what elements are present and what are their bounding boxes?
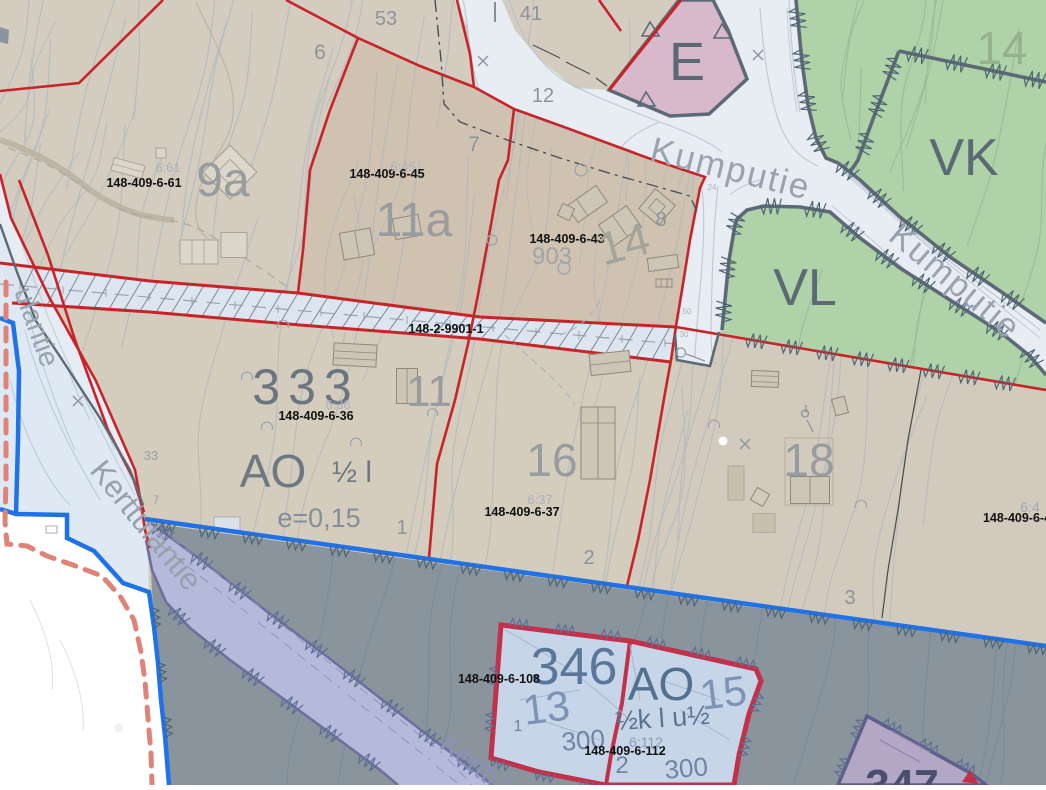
svg-text:18: 18 [783, 434, 834, 486]
svg-text:24: 24 [708, 183, 717, 192]
svg-text:6:61: 6:61 [155, 160, 180, 175]
svg-text:2: 2 [583, 547, 594, 569]
svg-text:6:37: 6:37 [527, 492, 552, 507]
svg-text:30: 30 [680, 330, 689, 339]
svg-text:148-409-6-108: 148-409-6-108 [458, 672, 540, 686]
svg-text:53: 53 [375, 8, 397, 30]
svg-text:11: 11 [406, 367, 452, 416]
svg-text:903: 903 [532, 243, 572, 270]
svg-text:1: 1 [514, 718, 523, 735]
svg-text:6:112: 6:112 [629, 734, 663, 750]
svg-text:16: 16 [526, 434, 577, 486]
svg-text:33: 33 [144, 448, 158, 463]
svg-text:148-409-6-61: 148-409-6-61 [106, 176, 181, 190]
svg-text:6:36: 6:36 [325, 397, 350, 412]
svg-text:½ l: ½ l [332, 456, 372, 489]
svg-text:300: 300 [663, 751, 709, 785]
svg-text:9a: 9a [196, 154, 250, 207]
svg-text:VK: VK [929, 129, 999, 187]
svg-text:3: 3 [844, 587, 855, 609]
svg-text:8: 8 [655, 209, 666, 231]
svg-text:VL: VL [773, 259, 837, 317]
svg-text:7: 7 [153, 493, 160, 507]
svg-text:6: 6 [314, 41, 326, 64]
svg-text:148-409-6-37: 148-409-6-37 [484, 505, 559, 519]
svg-text:1: 1 [396, 517, 407, 539]
svg-text:14: 14 [976, 22, 1027, 74]
svg-text:41: 41 [520, 3, 542, 25]
svg-text:2: 2 [615, 752, 628, 779]
svg-text:12: 12 [532, 85, 554, 107]
svg-text:7: 7 [468, 133, 480, 156]
svg-text:6:4: 6:4 [1020, 499, 1040, 515]
svg-text:e=0,15: e=0,15 [277, 503, 360, 533]
svg-text:6:45: 6:45 [390, 159, 415, 174]
svg-text:11a: 11a [376, 194, 453, 247]
svg-text:347: 347 [865, 761, 938, 785]
svg-text:AO: AO [240, 445, 306, 497]
svg-text:148-2-9901-1: 148-2-9901-1 [408, 322, 483, 336]
svg-text:E: E [669, 32, 705, 92]
svg-text:50: 50 [683, 307, 692, 316]
